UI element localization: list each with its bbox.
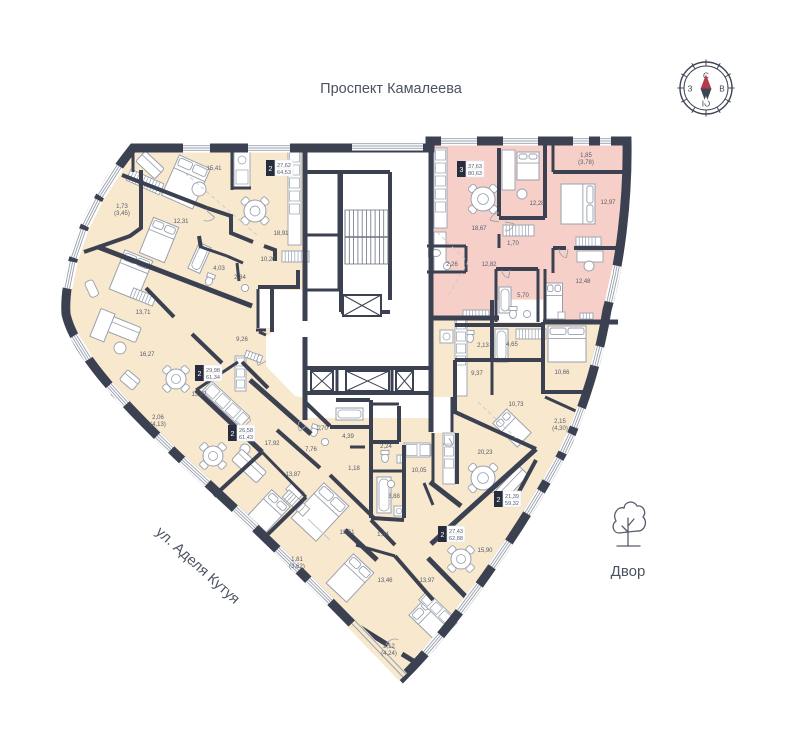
svg-text:1,85: 1,85 <box>580 153 592 159</box>
svg-text:59,32: 59,32 <box>505 501 519 507</box>
svg-text:1,18: 1,18 <box>348 466 360 472</box>
svg-text:10,05: 10,05 <box>411 468 427 474</box>
svg-text:12,97: 12,97 <box>600 200 616 206</box>
svg-text:13,97: 13,97 <box>191 392 207 398</box>
svg-text:1,34: 1,34 <box>377 532 389 538</box>
svg-text:2: 2 <box>497 497 501 504</box>
svg-text:4,65: 4,65 <box>506 342 518 348</box>
svg-text:2,26: 2,26 <box>446 262 458 268</box>
svg-text:2,15: 2,15 <box>554 419 566 425</box>
svg-text:2,06: 2,06 <box>152 415 164 421</box>
svg-text:62,88: 62,88 <box>449 536 463 542</box>
svg-text:(4,24): (4,24) <box>381 651 397 657</box>
svg-text:5,70: 5,70 <box>517 293 529 299</box>
svg-text:15,90: 15,90 <box>477 548 493 554</box>
svg-text:13,71: 13,71 <box>135 310 151 316</box>
svg-text:17,92: 17,92 <box>264 441 280 447</box>
svg-text:4,03: 4,03 <box>213 266 225 272</box>
svg-text:Проспект Камалеева: Проспект Камалеева <box>320 81 463 97</box>
svg-text:3: 3 <box>460 167 464 174</box>
svg-text:64,53: 64,53 <box>277 170 291 176</box>
svg-text:2,12: 2,12 <box>383 644 395 650</box>
svg-text:80,63: 80,63 <box>468 171 482 177</box>
svg-text:13,51: 13,51 <box>339 530 355 536</box>
svg-text:18,91: 18,91 <box>273 231 289 237</box>
svg-text:13,87: 13,87 <box>285 472 301 478</box>
svg-text:4,39: 4,39 <box>342 434 354 440</box>
svg-text:10,20: 10,20 <box>260 257 276 263</box>
svg-text:7,76: 7,76 <box>305 447 317 453</box>
svg-text:1,70: 1,70 <box>316 426 328 432</box>
svg-text:13,97: 13,97 <box>419 578 435 584</box>
svg-text:16,27: 16,27 <box>139 352 155 358</box>
svg-text:1,81: 1,81 <box>291 557 303 563</box>
svg-text:61,43: 61,43 <box>239 435 253 441</box>
svg-text:1,70: 1,70 <box>507 241 519 247</box>
svg-text:2: 2 <box>441 532 445 539</box>
svg-text:ул. Аделя Кутуя: ул. Аделя Кутуя <box>152 524 242 607</box>
svg-text:13,46: 13,46 <box>377 578 393 584</box>
svg-text:(3,62): (3,62) <box>289 564 305 570</box>
svg-text:61,34: 61,34 <box>206 375 220 381</box>
svg-text:9,37: 9,37 <box>471 371 483 377</box>
svg-text:2: 2 <box>198 371 202 378</box>
svg-text:12,31: 12,31 <box>173 219 189 225</box>
svg-text:3,88: 3,88 <box>388 494 400 500</box>
svg-text:18,67: 18,67 <box>471 226 487 232</box>
svg-text:10,73: 10,73 <box>508 402 524 408</box>
svg-text:(3,45): (3,45) <box>114 211 130 217</box>
svg-text:2: 2 <box>269 166 273 173</box>
svg-text:В: В <box>719 85 725 94</box>
svg-text:(4,30): (4,30) <box>552 426 568 432</box>
svg-text:1,73: 1,73 <box>116 204 128 210</box>
svg-text:(3,78): (3,78) <box>578 160 594 166</box>
svg-text:12,48: 12,48 <box>575 279 591 285</box>
svg-text:2,84: 2,84 <box>234 275 246 281</box>
svg-text:З: З <box>688 85 693 94</box>
svg-text:2,13: 2,13 <box>477 343 489 349</box>
svg-text:2,24: 2,24 <box>380 444 392 450</box>
svg-text:2: 2 <box>231 431 235 438</box>
svg-text:10,66: 10,66 <box>554 370 570 376</box>
svg-text:12,82: 12,82 <box>481 262 497 268</box>
svg-text:(4,13): (4,13) <box>150 422 166 428</box>
svg-text:Двор: Двор <box>611 563 646 580</box>
svg-text:9,26: 9,26 <box>236 337 248 343</box>
svg-text:15,41: 15,41 <box>206 166 222 172</box>
svg-text:20,23: 20,23 <box>477 450 493 456</box>
svg-text:12,28: 12,28 <box>529 201 545 207</box>
